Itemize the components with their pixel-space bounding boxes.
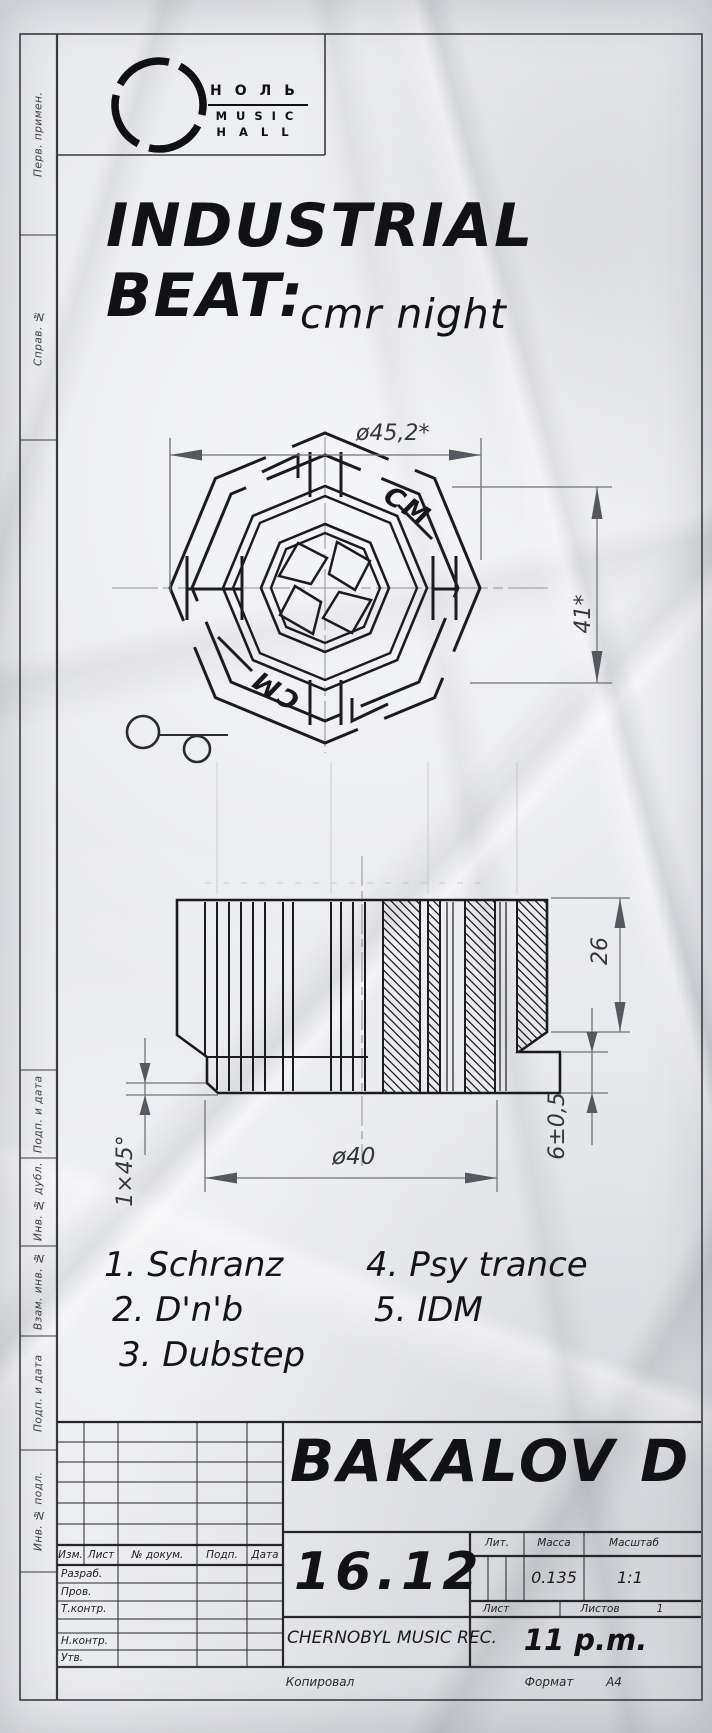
footer-format-label: Формат xyxy=(516,1676,582,1688)
tb-header-podp: Подп. xyxy=(197,1550,247,1561)
logo-divider xyxy=(208,104,308,106)
event-title-line1: INDUSTRIAL xyxy=(106,196,534,256)
logo-word-music: MUSIC xyxy=(206,111,312,123)
dimension-lines xyxy=(126,438,630,1192)
genre-item-2: 2. D'n'b xyxy=(112,1293,243,1327)
footer-kopiroval: Копировал xyxy=(260,1676,380,1688)
tb-sheets-label: Листов xyxy=(565,1604,635,1615)
dim-outer-diameter: ø45,2* xyxy=(356,423,429,445)
genre-item-1: 1. Schranz xyxy=(104,1248,283,1282)
genre-item-4: 4. Psy trance xyxy=(366,1248,588,1282)
tb-header-dokum: № докум. xyxy=(118,1550,197,1561)
dim-section-height: 26 xyxy=(590,928,612,974)
tb-masshtab-label: Масштаб xyxy=(584,1538,684,1549)
tb-massa-label: Масса xyxy=(524,1538,584,1549)
margin-label-inv-no-dubl: Инв. № дубл. xyxy=(21,1158,56,1246)
logo-venue-name: НОЛЬ xyxy=(206,84,312,98)
margin-label-inv-no-podl: Инв. № подл. xyxy=(21,1450,56,1572)
record-label: CHERNOBYL MUSIC REC. xyxy=(287,1630,497,1647)
margin-label-perv-primen: Перв. примен. xyxy=(21,34,56,235)
section-view-drawing xyxy=(177,900,560,1093)
footer-format-value: А4 xyxy=(596,1676,632,1688)
logo-word-hall: HALL xyxy=(206,127,312,139)
tb-row-razrab: Разраб. xyxy=(61,1569,102,1580)
tb-lit-label: Лит. xyxy=(470,1538,524,1549)
tb-row-tkontr: Т.контр. xyxy=(61,1604,107,1615)
dim-chamfer: 1×45° xyxy=(115,1138,137,1204)
tb-scale-value: 1:1 xyxy=(584,1570,676,1586)
poster-sheet: Перв. примен. Справ. № Подп. и дата Инв.… xyxy=(0,0,712,1733)
tb-row-nkontr: Н.контр. xyxy=(61,1636,108,1647)
tb-row-utv: Утв. xyxy=(61,1653,83,1664)
tb-header-list: Лист xyxy=(84,1550,118,1561)
dim-side-height: 41* xyxy=(572,582,596,646)
event-title-line2: BEAT: xyxy=(106,266,305,326)
tb-header-data: Дата xyxy=(247,1550,283,1561)
dim-flange: 6±0,5 xyxy=(547,1083,569,1169)
event-date: 16.12 xyxy=(294,1546,483,1598)
tb-sheet-label: Лист xyxy=(474,1604,518,1615)
margin-label-sprav-no: Справ. № xyxy=(21,235,56,440)
genre-item-5: 5. IDM xyxy=(374,1293,483,1327)
margin-label-vzam-inv-no: Взам. инв. № xyxy=(21,1246,56,1336)
margin-label-podp-i-data-1: Подп. и дата xyxy=(21,1070,56,1158)
logo-circle-icon xyxy=(99,45,218,164)
event-time: 11 p.m. xyxy=(470,1626,701,1655)
tb-massa-value: 0.135 xyxy=(524,1570,584,1586)
artist-name: BAKALOV D xyxy=(290,1432,691,1490)
tb-header-izm: Изм. xyxy=(57,1550,84,1561)
margin-label-podp-i-data-2: Подп. и дата xyxy=(21,1336,56,1450)
emblem-drawing xyxy=(127,433,480,762)
event-subtitle: cmr night xyxy=(300,294,507,335)
tb-row-prov: Пров. xyxy=(61,1587,92,1598)
genre-item-3: 3. Dubstep xyxy=(119,1338,305,1372)
callout-circles xyxy=(127,716,228,762)
tb-sheets-value: 1 xyxy=(645,1604,675,1615)
dim-bottom-diameter: ø40 xyxy=(332,1146,375,1169)
